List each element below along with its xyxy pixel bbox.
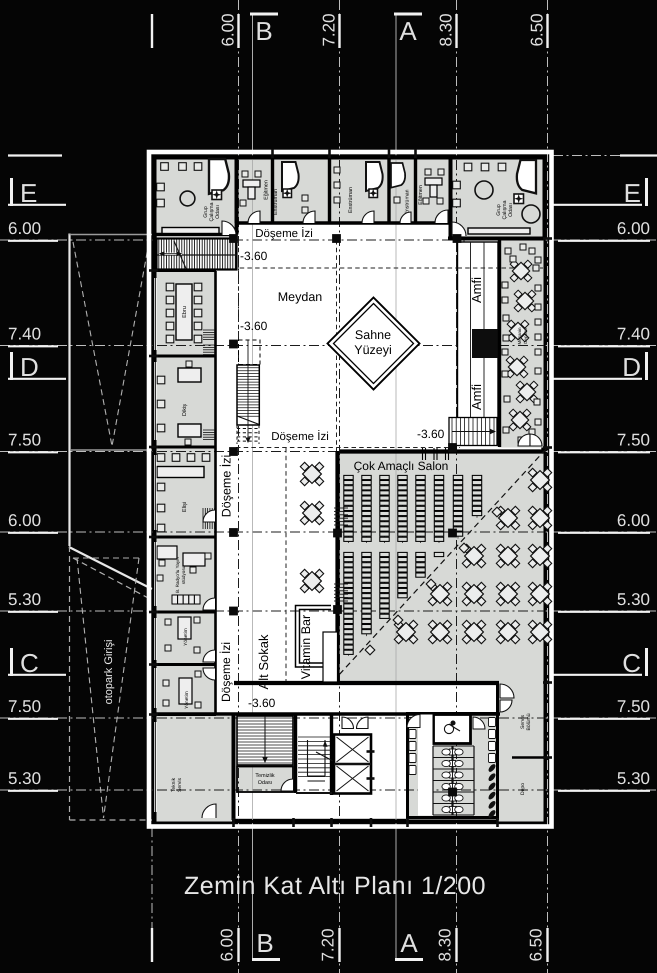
svg-text:Döşeme İzi: Döşeme İzi	[255, 227, 313, 240]
svg-text:Çok Amaçlı Salon: Çok Amaçlı Salon	[354, 459, 449, 473]
svg-text:8.30: 8.30	[436, 928, 455, 961]
svg-text:7.50: 7.50	[617, 431, 650, 450]
svg-text:Odası: Odası	[508, 203, 514, 217]
svg-text:A: A	[399, 16, 417, 46]
svg-text:Döşeme İzi: Döşeme İzi	[220, 455, 234, 518]
svg-text:Enstrüman: Enstrüman	[405, 189, 411, 214]
svg-text:7.40: 7.40	[617, 325, 650, 344]
svg-text:Amfi: Amfi	[469, 384, 484, 410]
svg-text:6.50: 6.50	[528, 13, 547, 46]
svg-text:6.00: 6.00	[617, 219, 650, 238]
svg-text:Temizlik: Temizlik	[255, 773, 274, 779]
svg-text:6.00: 6.00	[219, 13, 238, 46]
svg-text:D: D	[622, 352, 641, 382]
svg-text:B. Radyo'lu Yayın: B. Radyo'lu Yayın	[175, 557, 180, 593]
svg-text:Servis: Servis	[177, 778, 183, 792]
svg-text:Odası: Odası	[215, 205, 221, 219]
svg-text:Depo: Depo	[520, 783, 526, 795]
svg-text:7.50: 7.50	[617, 697, 650, 716]
svg-text:Vitamin Bar: Vitamin Bar	[299, 615, 313, 679]
svg-text:Zemin Kat Altı Planı 1/200: Zemin Kat Altı Planı 1/200	[184, 872, 486, 900]
svg-text:6.00: 6.00	[8, 511, 41, 530]
svg-text:E: E	[624, 178, 641, 208]
svg-text:C: C	[20, 648, 39, 678]
svg-text:8.30: 8.30	[437, 13, 456, 46]
svg-text:Yönetim: Yönetim	[183, 628, 189, 646]
svg-text:E: E	[20, 178, 37, 208]
svg-text:Eğitmen: Eğitmen	[418, 185, 424, 205]
svg-text:-3.60: -3.60	[417, 427, 445, 441]
svg-text:Döşeme İzi: Döşeme İzi	[219, 642, 233, 702]
svg-text:-3.60: -3.60	[240, 249, 268, 263]
svg-text:stüdyosu: stüdyosu	[181, 565, 186, 584]
svg-text:Sahne: Sahne	[355, 328, 391, 342]
svg-text:7.50: 7.50	[8, 697, 41, 716]
svg-text:Alt Sokak: Alt Sokak	[256, 634, 271, 689]
svg-text:Amfi: Amfi	[469, 277, 484, 303]
svg-text:6.50: 6.50	[527, 928, 546, 961]
svg-text:6.00: 6.00	[617, 511, 650, 530]
svg-text:5.30: 5.30	[8, 769, 41, 788]
svg-text:C: C	[622, 648, 641, 678]
svg-text:D: D	[20, 352, 39, 382]
svg-text:7.50: 7.50	[8, 431, 41, 450]
svg-text:B: B	[255, 16, 272, 46]
svg-text:Yönetim: Yönetim	[184, 691, 190, 709]
svg-text:Odası: Odası	[258, 780, 272, 786]
svg-text:Meydan: Meydan	[278, 290, 323, 304]
svg-text:Enstrüman: Enstrüman	[273, 189, 279, 215]
svg-text:Yüzeyi: Yüzeyi	[354, 343, 392, 357]
svg-text:Döşeme İzi: Döşeme İzi	[271, 430, 329, 443]
svg-text:Enstrüman: Enstrüman	[348, 187, 354, 213]
svg-text:Deposu: Deposu	[523, 328, 528, 344]
svg-text:-3.60: -3.60	[248, 696, 276, 710]
svg-text:6.00: 6.00	[218, 928, 237, 961]
svg-text:6.00: 6.00	[8, 219, 41, 238]
svg-text:5.30: 5.30	[8, 590, 41, 609]
svg-text:7.20: 7.20	[319, 928, 338, 961]
svg-text:Ebru: Ebru	[181, 306, 188, 318]
svg-text:A: A	[400, 928, 418, 958]
svg-text:5.30: 5.30	[617, 590, 650, 609]
svg-text:otopark Girişi: otopark Girişi	[103, 640, 115, 705]
svg-text:-3.60: -3.60	[240, 319, 268, 333]
svg-text:B: B	[256, 928, 273, 958]
svg-text:7.40: 7.40	[8, 325, 41, 344]
svg-text:Eğitmen: Eğitmen	[264, 180, 270, 200]
svg-text:7.20: 7.20	[320, 13, 339, 46]
svg-text:Bölümü: Bölümü	[526, 713, 532, 730]
svg-text:Mezanin: Mezanin	[517, 327, 522, 345]
svg-text:Dikiş: Dikiş	[181, 404, 188, 416]
svg-text:Elişi: Elişi	[181, 502, 188, 512]
svg-text:5.30: 5.30	[617, 769, 650, 788]
